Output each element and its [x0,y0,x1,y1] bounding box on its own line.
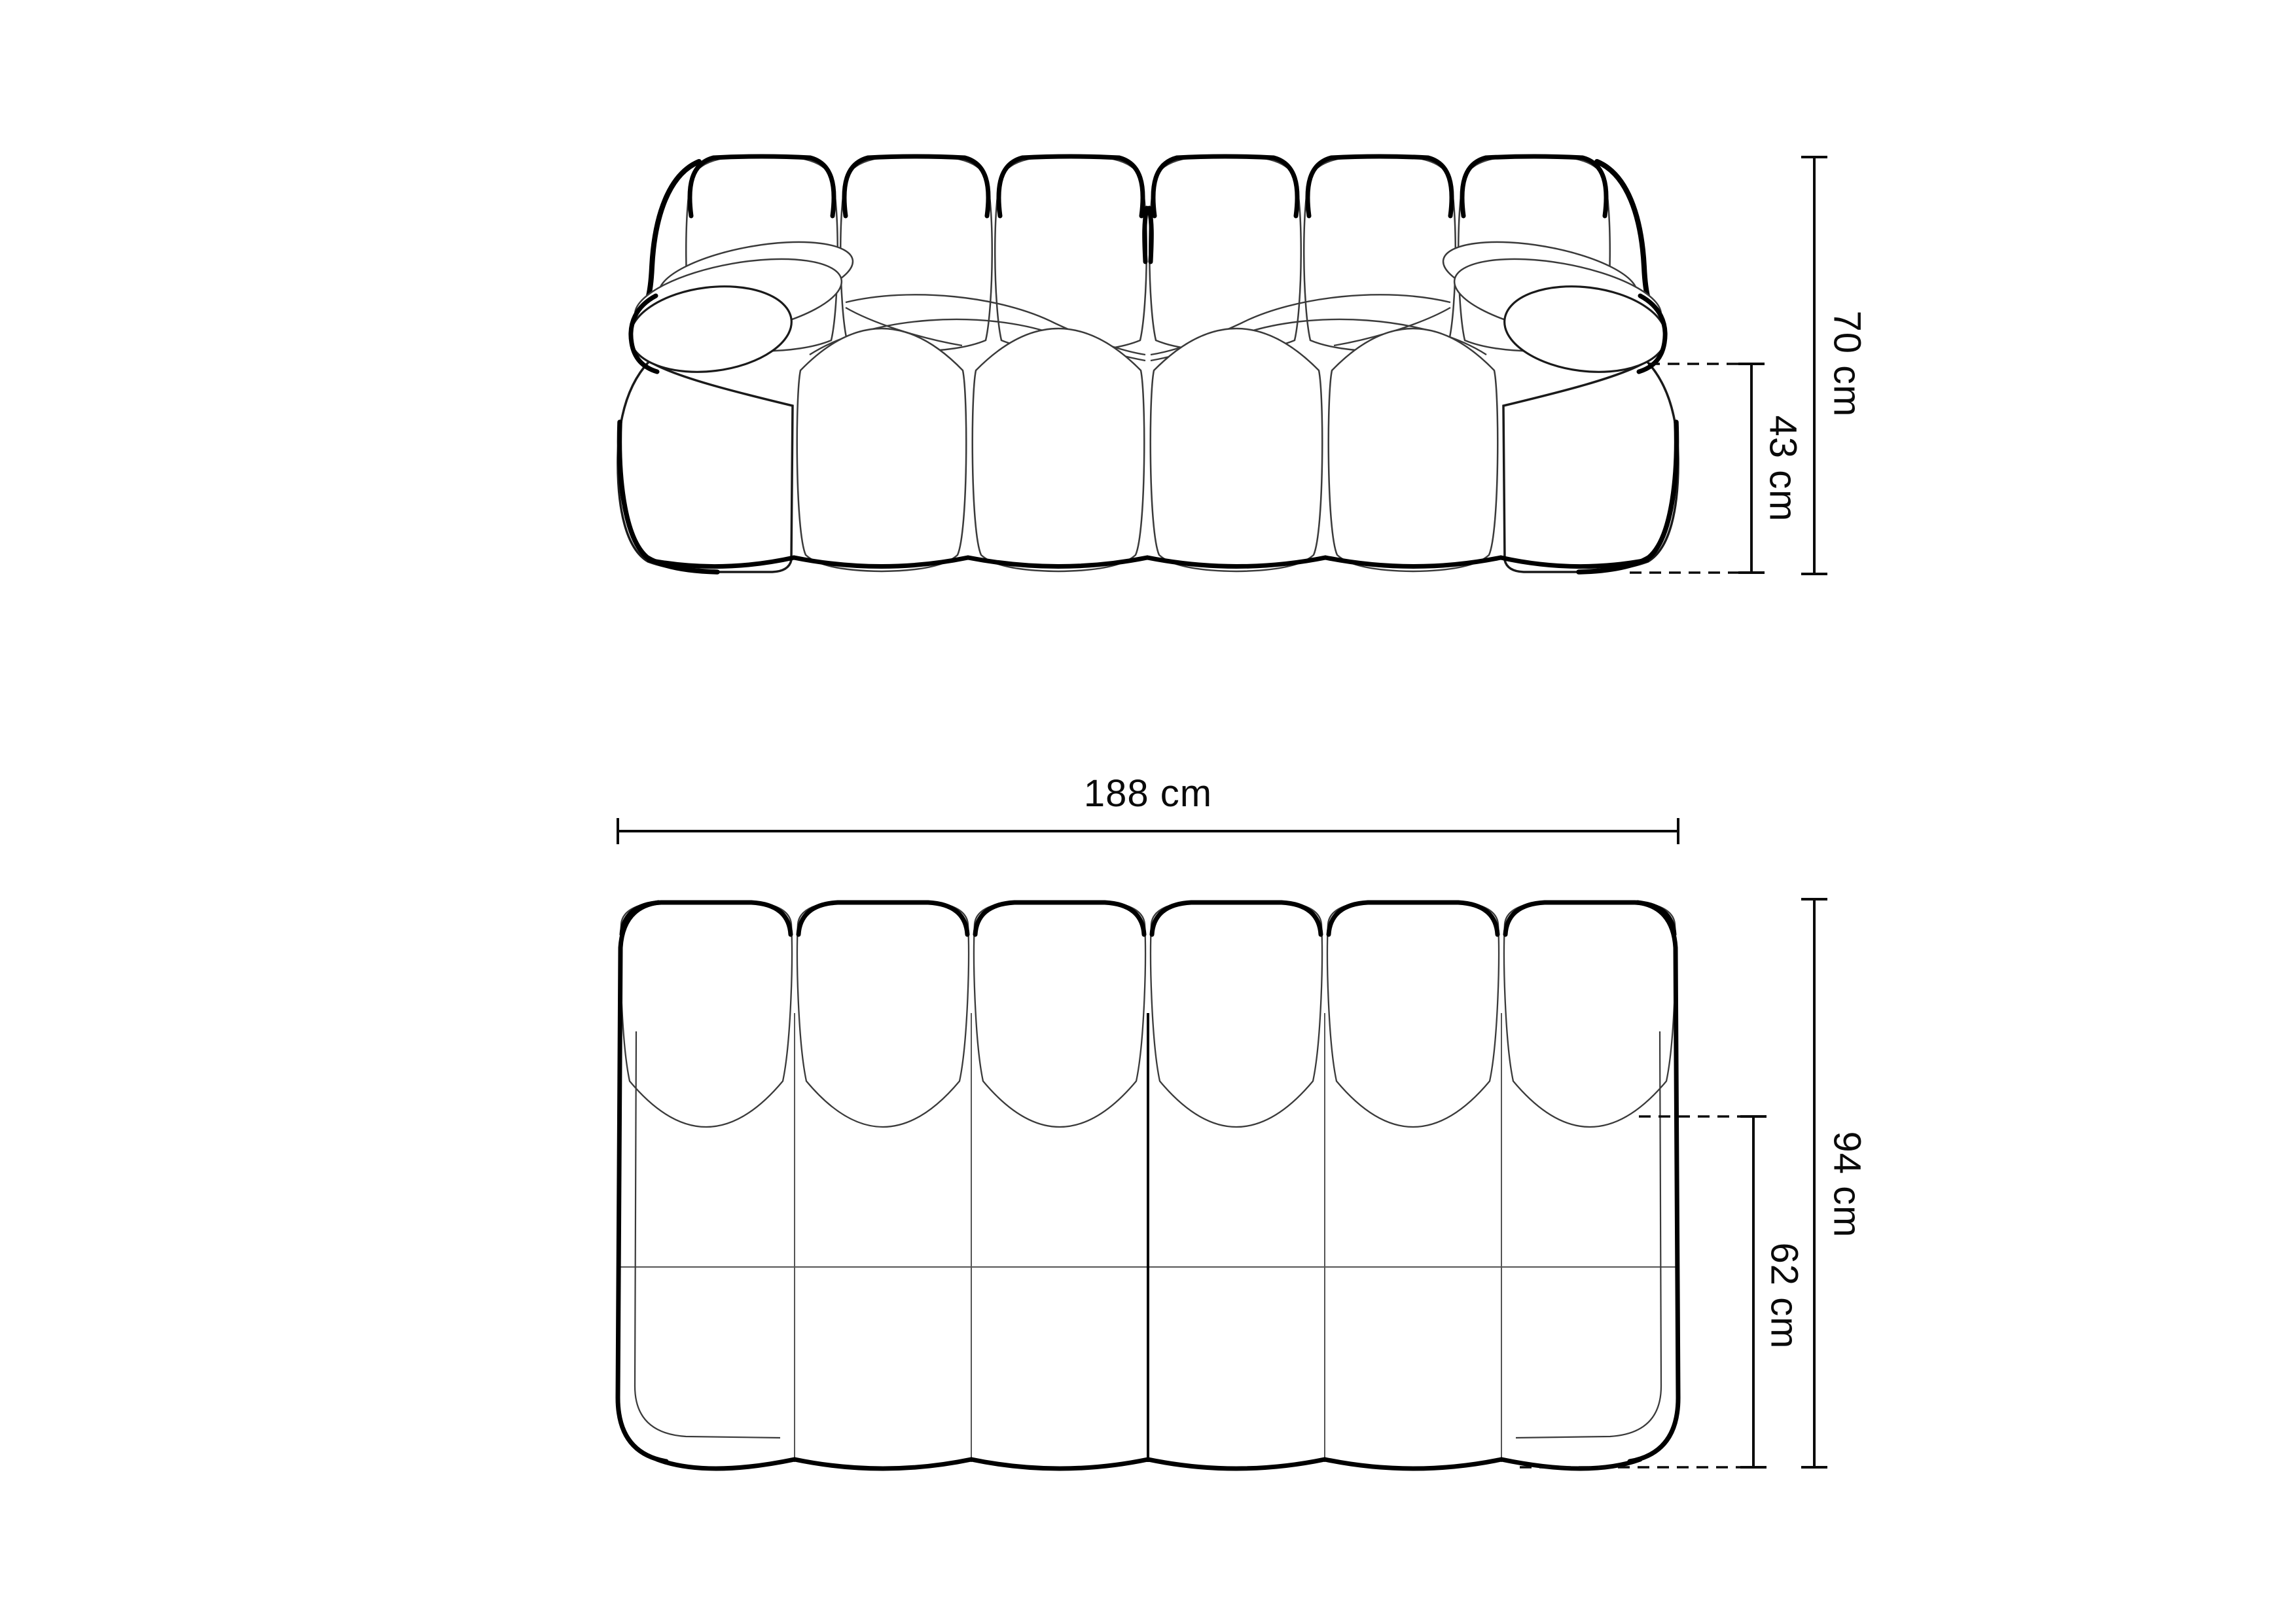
seat-depth-dimension [1740,1116,1767,1467]
overall-depth-dimension [1801,899,1827,1467]
seat-cushion [1329,329,1498,571]
arm-height-label: 43 cm [1762,416,1804,522]
armrest-base [618,361,793,572]
seat-cushion [1151,329,1323,571]
top-back-cushion [1504,902,1676,1127]
seat-depth-label: 62 cm [1763,1243,1806,1349]
back-cushion [1149,156,1301,351]
overall-height-label: 70 cm [1826,311,1869,418]
overall-width-dimension [618,818,1678,844]
top-back-cushion [1151,902,1322,1127]
seat-cushion [973,329,1145,571]
top-back-cushion [620,902,792,1127]
front-scalloped-edge [657,1459,1640,1469]
top-back-cushion [797,902,969,1127]
back-cushion [995,156,1147,351]
sofa-dimension-drawing: 70 cm 43 cm [0,0,2296,1623]
top-back-cushion [974,902,1145,1127]
overall-depth-label: 94 cm [1826,1132,1869,1238]
top-back-cushion [1327,902,1499,1127]
overall-width-label: 188 cm [1084,772,1212,815]
sofa-front-view: 70 cm 43 cm [618,156,1869,574]
sofa-top-view: 188 cm 94 cm 62 cm [618,772,1869,1469]
seat-cushions [797,329,1498,571]
arm-height-dimension [1738,364,1765,573]
seat-cushion [797,329,967,571]
front-bottom-outline [649,558,1647,567]
overall-height-dimension [1801,157,1827,574]
